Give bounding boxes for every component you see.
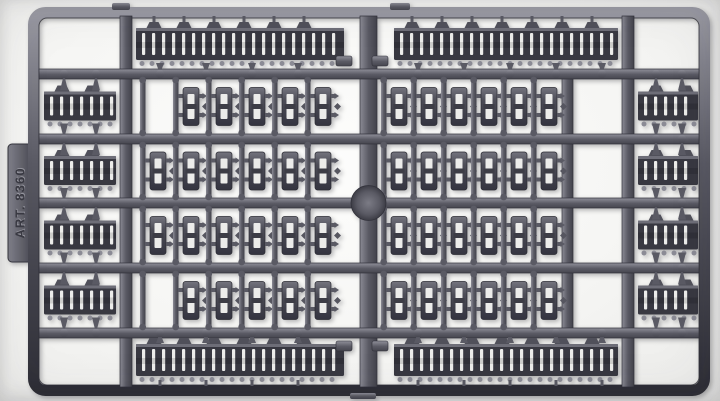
sprue-gate	[463, 380, 466, 386]
track-tooth	[330, 61, 335, 66]
link-center-bar	[318, 233, 329, 238]
link-stem	[531, 77, 537, 136]
link-center-bar	[424, 233, 435, 238]
sprue-gate	[139, 194, 146, 201]
track-tooth	[528, 377, 533, 382]
sprue-gate	[304, 271, 311, 278]
track-tooth	[310, 377, 315, 382]
sprue-gate	[139, 130, 146, 137]
track-tooth	[210, 61, 215, 66]
link-center-bar	[454, 298, 465, 303]
link-pin	[437, 113, 441, 117]
track-tooth	[320, 61, 325, 66]
track-tooth	[290, 61, 295, 66]
link-center-bar	[514, 233, 525, 238]
link-pin	[467, 307, 471, 311]
track-shade	[638, 168, 698, 174]
sprue-gate	[500, 206, 507, 213]
link-pin	[265, 223, 269, 227]
link-pin	[232, 223, 236, 227]
track-tooth	[578, 377, 583, 382]
track-link-unit	[271, 271, 308, 331]
link-pin	[497, 113, 501, 117]
track-top-rail	[638, 286, 698, 289]
sprue-gate	[92, 70, 100, 78]
link-pin	[467, 94, 471, 98]
sprue-gate	[555, 380, 558, 386]
link-guide-tooth	[334, 232, 341, 239]
sprue-gate	[652, 135, 660, 143]
track-link-unit	[205, 77, 242, 137]
track-tooth	[568, 377, 573, 382]
track-section-segment	[638, 135, 698, 207]
track-top-rail	[394, 28, 618, 31]
sprue-gate	[440, 142, 447, 149]
track-tooth	[300, 377, 305, 382]
track-tooth	[548, 61, 553, 66]
track-tooth	[672, 122, 677, 127]
track-tooth	[190, 61, 195, 66]
link-pin	[407, 178, 411, 182]
link-center-bar	[219, 104, 230, 109]
sprue-gate	[500, 271, 507, 278]
sprue-gate	[139, 324, 146, 331]
track-shade	[44, 233, 116, 239]
sprue-gate	[271, 130, 278, 137]
track-tooth	[642, 122, 647, 127]
sprue-gate	[509, 380, 512, 386]
track-link-unit	[304, 206, 341, 266]
track-tooth	[260, 377, 265, 382]
link-pin	[298, 178, 302, 182]
track-tooth	[538, 61, 543, 66]
runner-horizontal	[39, 134, 699, 144]
injection-point	[351, 186, 386, 221]
track-tooth	[568, 61, 573, 66]
track-tooth	[170, 377, 175, 382]
sprue-gate	[530, 142, 537, 149]
link-pin	[199, 288, 203, 292]
track-tooth	[578, 61, 583, 66]
track-tooth	[428, 377, 433, 382]
sprue-gate	[271, 194, 278, 201]
link-stem	[206, 142, 212, 200]
track-tooth	[428, 61, 433, 66]
sprue-gate	[380, 130, 387, 137]
track-tooth	[588, 377, 593, 382]
link-stem	[531, 142, 537, 200]
link-pin	[199, 159, 203, 163]
sprue-gate	[139, 271, 146, 278]
link-pin	[331, 307, 335, 311]
link-guide-tooth	[334, 297, 341, 304]
sprue-gate	[251, 380, 254, 386]
track-tooth	[662, 251, 667, 256]
link-pin	[407, 113, 411, 117]
link-stem	[173, 206, 179, 265]
track-tooth	[608, 377, 613, 382]
guide-horn	[464, 22, 480, 29]
track-tooth	[692, 316, 697, 321]
track-shade	[638, 233, 698, 239]
sprue-gate	[552, 329, 560, 337]
track-section-segment	[638, 199, 698, 272]
track-link-unit	[304, 142, 341, 201]
sprue-gate	[139, 206, 146, 213]
track-tooth	[180, 377, 185, 382]
track-tooth	[438, 377, 443, 382]
link-pin	[298, 223, 302, 227]
sprue-gate	[440, 324, 447, 331]
sprue-gate	[470, 206, 477, 213]
track-link-unit	[530, 77, 567, 137]
link-center-bar	[153, 233, 164, 238]
link-center-bar	[186, 169, 197, 174]
sprue-gate	[172, 271, 179, 278]
link-pin	[527, 307, 531, 311]
track-tooth	[68, 251, 73, 256]
link-pin	[467, 242, 471, 246]
track-link-unit	[271, 142, 308, 201]
track-section-segment	[44, 264, 116, 337]
track-shade	[44, 104, 116, 110]
guide-horn	[554, 22, 570, 29]
link-stem	[239, 206, 245, 265]
guide-horn	[434, 22, 450, 29]
sprue-gate	[678, 70, 686, 78]
sprue-gate	[172, 206, 179, 213]
link-stem	[305, 77, 311, 136]
link-center-bar	[454, 104, 465, 109]
link-stem	[531, 271, 537, 330]
link-pin	[232, 159, 236, 163]
track-tooth	[240, 377, 245, 382]
sprue-gate	[598, 329, 606, 337]
track-tooth	[608, 61, 613, 66]
link-center-bar	[514, 169, 525, 174]
track-tooth	[140, 377, 145, 382]
sprue-gate	[678, 135, 686, 143]
track-tooth	[488, 61, 493, 66]
sprue-gate	[530, 194, 537, 201]
link-pin	[437, 288, 441, 292]
link-pin	[331, 113, 335, 117]
track-section-segment	[44, 199, 116, 272]
link-stem	[272, 271, 278, 330]
track-top-rail	[136, 28, 344, 31]
sprue-gate	[601, 380, 604, 386]
track-tooth	[68, 316, 73, 321]
link-center-bar	[219, 233, 230, 238]
sprue-gate	[92, 199, 100, 207]
link-stem	[471, 77, 477, 136]
track-tooth	[68, 186, 73, 191]
guide-horn	[266, 338, 282, 345]
sprue-gate	[530, 77, 537, 84]
sprue-gate	[380, 324, 387, 331]
track-tooth	[398, 377, 403, 382]
sprue-gate	[205, 324, 212, 331]
sprue-gate	[460, 70, 468, 78]
sprue-gate	[304, 206, 311, 213]
track-link-unit	[304, 77, 341, 137]
link-center-bar	[484, 169, 495, 174]
track-tooth	[108, 251, 113, 256]
link-stem	[272, 142, 278, 200]
track-tooth	[48, 122, 53, 127]
sprue-gate	[506, 70, 514, 78]
sprue-gate	[92, 264, 100, 272]
track-link-unit	[304, 271, 341, 331]
sprue-gate	[238, 259, 245, 266]
track-tooth	[320, 377, 325, 382]
link-pin	[166, 159, 170, 163]
link-stem	[471, 206, 477, 265]
sprue-gate	[410, 77, 417, 84]
link-stem	[441, 142, 447, 200]
link-center-bar	[219, 169, 230, 174]
sprue-gate	[380, 142, 387, 149]
link-pin	[527, 113, 531, 117]
track-tooth	[108, 186, 113, 191]
track-top-rail	[394, 344, 618, 347]
sprue-gate-tab	[372, 341, 388, 351]
sprue-gate	[304, 324, 311, 331]
track-tooth	[478, 61, 483, 66]
track-tooth	[220, 61, 225, 66]
sprue-gate	[440, 130, 447, 137]
link-center-bar	[219, 298, 230, 303]
track-shade	[136, 358, 344, 364]
link-pin	[497, 94, 501, 98]
link-center-bar	[544, 233, 555, 238]
sprue-gate	[335, 158, 340, 164]
link-center-bar	[454, 233, 465, 238]
link-stem	[140, 206, 146, 265]
sprue-gate-tab	[336, 56, 352, 66]
sprue-gate	[304, 259, 311, 266]
link-center-bar	[285, 298, 296, 303]
guide-horn	[146, 22, 162, 29]
sprue-gate	[139, 259, 146, 266]
link-pin	[265, 242, 269, 246]
sprue-gate	[304, 194, 311, 201]
sprue-gate	[652, 264, 660, 272]
track-link-unit	[271, 77, 308, 137]
track-tooth	[518, 377, 523, 382]
sprue-gate	[205, 259, 212, 266]
track-tooth	[230, 377, 235, 382]
link-guide-tooth	[334, 168, 341, 175]
track-tooth	[88, 122, 93, 127]
track-tooth	[260, 61, 265, 66]
link-pin	[331, 178, 335, 182]
track-tooth	[408, 377, 413, 382]
link-pin	[497, 223, 501, 227]
track-tooth	[662, 186, 667, 191]
track-link-unit	[172, 77, 209, 137]
sprue-gate	[460, 329, 468, 337]
link-pin	[437, 307, 441, 311]
link-stem	[239, 77, 245, 136]
sprue-gate	[238, 130, 245, 137]
track-tooth	[190, 377, 195, 382]
track-tooth	[662, 122, 667, 127]
sprue-gate	[172, 130, 179, 137]
track-shade	[44, 298, 116, 304]
link-center-bar	[285, 233, 296, 238]
sprue-gate	[500, 324, 507, 331]
sprue-gate	[470, 77, 477, 84]
track-tooth	[398, 61, 403, 66]
sprue-gate	[530, 271, 537, 278]
track-tooth	[518, 61, 523, 66]
link-pin	[527, 288, 531, 292]
part-number-label: ART. 8360	[13, 167, 28, 238]
sprue-gate	[470, 142, 477, 149]
sprue-gate	[440, 77, 447, 84]
track-tooth	[78, 186, 83, 191]
track-tooth	[458, 377, 463, 382]
sprue-gate	[172, 142, 179, 149]
sprue-gate	[530, 324, 537, 331]
sprue-gate	[271, 206, 278, 213]
sprue-gate	[380, 271, 387, 278]
track-shade	[638, 298, 698, 304]
link-stem	[239, 142, 245, 200]
sprue-gate	[60, 199, 68, 207]
sprue-gate	[60, 264, 68, 272]
link-stem	[272, 77, 278, 136]
guide-horn	[524, 338, 540, 345]
link-pin	[437, 242, 441, 246]
track-tooth	[558, 377, 563, 382]
sprue-gate	[271, 142, 278, 149]
track-tooth	[78, 316, 83, 321]
track-tooth	[538, 377, 543, 382]
sprue-gate	[652, 199, 660, 207]
link-center-bar	[252, 169, 263, 174]
link-pin	[437, 94, 441, 98]
track-tooth	[488, 377, 493, 382]
link-pin	[298, 159, 302, 163]
link-pin	[298, 113, 302, 117]
link-center-bar	[394, 104, 405, 109]
link-pin	[298, 242, 302, 246]
link-pin	[331, 159, 335, 163]
track-tooth	[88, 251, 93, 256]
link-pin	[298, 307, 302, 311]
track-link-unit	[172, 206, 209, 266]
link-center-bar	[186, 298, 197, 303]
sprue-gate	[271, 259, 278, 266]
sprue-gate	[440, 271, 447, 278]
sprue-gate	[248, 329, 256, 337]
link-pin	[199, 307, 203, 311]
track-tooth	[672, 316, 677, 321]
track-tooth	[548, 377, 553, 382]
track-tooth	[48, 251, 53, 256]
link-center-bar	[285, 104, 296, 109]
link-pin	[407, 288, 411, 292]
link-stem	[239, 271, 245, 330]
track-tooth	[498, 377, 503, 382]
link-pin	[437, 223, 441, 227]
link-pin	[557, 94, 561, 98]
link-stem	[441, 271, 447, 330]
sprue-gate	[678, 199, 686, 207]
sprue-gate	[417, 380, 420, 386]
guide-horn	[584, 338, 600, 345]
link-center-bar	[454, 169, 465, 174]
track-top-rail	[44, 221, 116, 224]
sprue-gate	[335, 241, 340, 247]
link-pin	[199, 178, 203, 182]
link-stem	[206, 206, 212, 265]
link-center-bar	[318, 104, 329, 109]
link-stem	[501, 77, 507, 136]
link-pin	[527, 94, 531, 98]
sprue-gate	[500, 130, 507, 137]
track-shade	[394, 42, 618, 48]
track-tooth	[642, 316, 647, 321]
track-tooth	[280, 377, 285, 382]
link-pin	[265, 288, 269, 292]
link-pin	[467, 113, 471, 117]
sprue-gate	[271, 271, 278, 278]
link-pin	[407, 307, 411, 311]
sprue-gate	[470, 271, 477, 278]
link-pin	[232, 113, 236, 117]
sprue-gate	[156, 329, 164, 337]
track-tooth	[642, 186, 647, 191]
link-pin	[437, 159, 441, 163]
sprue-gate-tab	[372, 56, 388, 66]
sprue-photo: ART. 8360 ART. 8360	[0, 0, 720, 401]
guide-horn	[434, 338, 450, 345]
link-pin	[331, 94, 335, 98]
guide-horn	[176, 338, 192, 345]
link-pin	[527, 242, 531, 246]
link-pin	[467, 178, 471, 182]
sprue-gate	[304, 142, 311, 149]
link-pin	[166, 178, 170, 182]
track-tooth	[270, 61, 275, 66]
track-tooth	[498, 61, 503, 66]
track-link-unit	[205, 271, 242, 331]
link-stem	[305, 271, 311, 330]
link-stem	[173, 142, 179, 200]
sprue-illustration: ART. 8360 ART. 8360	[0, 0, 720, 401]
link-pin	[497, 242, 501, 246]
sprue-gate	[205, 271, 212, 278]
link-stem	[305, 142, 311, 200]
link-pin	[497, 178, 501, 182]
link-stem	[140, 142, 146, 200]
sprue-gate	[238, 206, 245, 213]
track-link-unit	[238, 271, 275, 331]
sprue-gate	[304, 77, 311, 84]
link-stem	[441, 206, 447, 265]
link-center-bar	[484, 233, 495, 238]
link-stem	[411, 271, 417, 330]
sprue-gate	[380, 77, 387, 84]
sprue-gate	[500, 77, 507, 84]
sprue-gate	[470, 194, 477, 201]
sprue-gate	[172, 194, 179, 201]
track-tooth	[478, 377, 483, 382]
sprue-gate	[238, 324, 245, 331]
